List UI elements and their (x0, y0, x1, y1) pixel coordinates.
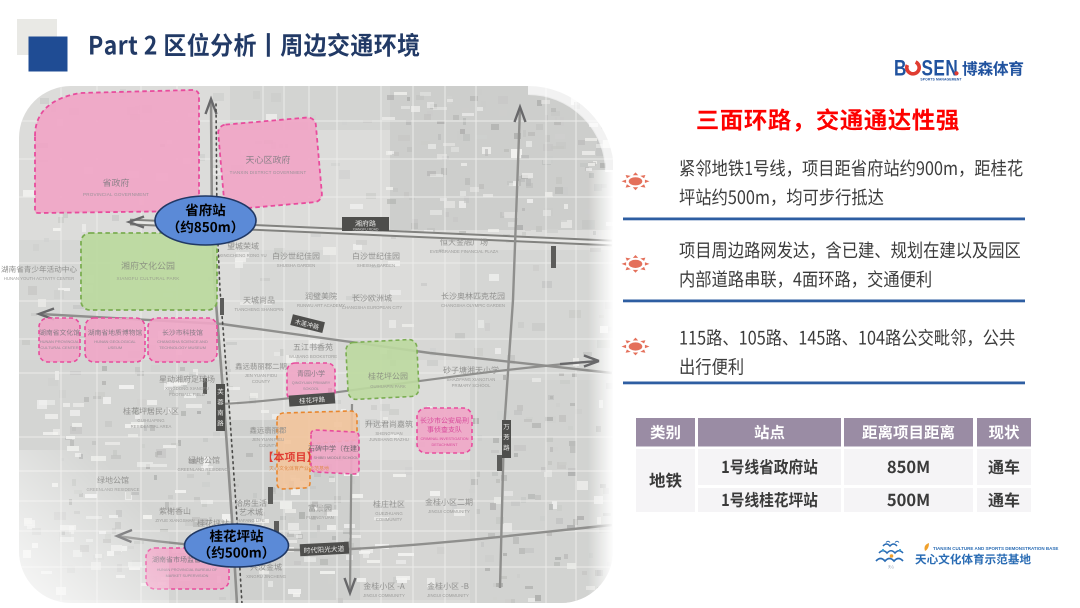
svg-text:RESIDENTIAL AREA: RESIDENTIAL AREA (131, 424, 172, 429)
svg-text:TIANXIN CULTURE AND SPORTS DEM: TIANXIN CULTURE AND SPORTS DEMONSTRATION… (933, 546, 1058, 551)
svg-text:MARKET SUPERVISION: MARKET SUPERVISION (166, 574, 209, 578)
svg-text:PRIMARY SCHOOL: PRIMARY SCHOOL (452, 383, 491, 388)
svg-text:天心: 天心 (888, 564, 895, 569)
svg-text:XINGCHENG RONG YU: XINGCHENG RONG YU (219, 253, 266, 258)
svg-text:RUNWU ART ACADEMY: RUNWU ART ACADEMY (297, 303, 345, 308)
svg-text:SPORTS MANAGEMENT: SPORTS MANAGEMENT (920, 78, 962, 82)
svg-text:GUIHUAPING: GUIHUAPING (137, 418, 165, 423)
svg-text:JINGUI COMMUNITY: JINGUI COMMUNITY (363, 593, 405, 598)
svg-text:XIANGFU CULTURAL PARK: XIANGFU CULTURAL PARK (116, 276, 180, 281)
svg-text:JINGUI COMMUNITY: JINGUI COMMUNITY (428, 509, 470, 514)
svg-text:HUNAN YOUTH ACTIVITY CENTER: HUNAN YOUTH ACTIVITY CENTER (4, 276, 75, 281)
svg-text:EVERGRANDE FINANCIAL PLAZA: EVERGRANDE FINANCIAL PLAZA (430, 249, 499, 254)
svg-text:TIANXIN DISTRICT GOVERNMENT: TIANXIN DISTRICT GOVERNMENT (230, 170, 307, 175)
svg-text:SHEISHA GARDEN: SHEISHA GARDEN (357, 263, 395, 268)
svg-text:DETACHMENT: DETACHMENT (431, 443, 458, 447)
svg-text:CRIMINAL INVESTIGATION: CRIMINAL INVESTIGATION (420, 437, 468, 441)
svg-text:GUIHUAPIN PARK: GUIHUAPIN PARK (370, 384, 406, 389)
svg-text:CHANGSHA OLYMPIC GARDEN: CHANGSHA OLYMPIC GARDEN (441, 303, 505, 308)
svg-text:SHENGYUAN: SHENGYUAN (375, 431, 402, 436)
svg-text:GUEZHUANG: GUEZHUANG (375, 511, 403, 516)
svg-text:TIANCHENG SHANGPIN: TIANCHENG SHANGPIN (235, 307, 284, 312)
svg-text:SHIBEI MIDDLE SCHOOL: SHIBEI MIDDLE SCHOOL (314, 456, 359, 460)
svg-text:CHANGSHA SCIENCE AND: CHANGSHA SCIENCE AND (157, 339, 208, 344)
svg-text:GREENLAND RESIDENCE: GREENLAND RESIDENCE (177, 467, 230, 472)
svg-text:JUNSHANG RAZHU: JUNSHANG RAZHU (369, 437, 409, 442)
svg-text:SHAZIFANG XIANGTIAN: SHAZIFANG XIANGTIAN (447, 377, 496, 382)
svg-text:FOOTBALL FIELD: FOOTBALL FIELD (169, 392, 205, 397)
svg-text:WUJIANG BOOKSTORE: WUJIANG BOOKSTORE (289, 354, 337, 359)
svg-text:JINGUI COMMUNITY: JINGUI COMMUNITY (427, 593, 469, 598)
svg-text:USEUM: USEUM (108, 345, 122, 350)
svg-text:SOKOOL: SOKOOL (303, 387, 319, 391)
svg-text:XINGDONG XIANGFU: XINGDONG XIANGFU (165, 386, 209, 391)
svg-text:FUJINGYUAN: FUJINGYUAN (306, 515, 333, 520)
svg-text:COUNTY: COUNTY (252, 379, 270, 384)
svg-text:CHANGSHA EUROPEAN CITY: CHANGSHA EUROPEAN CITY (342, 305, 403, 310)
svg-text:XINGRU JINCHENG: XINGRU JINCHENG (246, 574, 287, 579)
svg-text:SHUISHA GARDEN: SHUISHA GARDEN (277, 263, 315, 268)
svg-text:XIANGFU ROAD: XIANGFU ROAD (353, 228, 379, 232)
svg-text:HUNAN PROVINCIAL: HUNAN PROVINCIAL (40, 339, 80, 344)
svg-text:JEN YUAN FIDU: JEN YUAN FIDU (245, 373, 277, 378)
svg-text:COUNTY: COUNTY (259, 443, 277, 448)
svg-text:PROVINCIAL GOVERNMENT: PROVINCIAL GOVERNMENT (83, 192, 149, 197)
svg-text:HAFANG LIFE: HAFANG LIFE (237, 518, 265, 523)
svg-text:JEN YUAN FIEU: JEN YUAN FIEU (252, 437, 284, 442)
svg-text:COMMUNITY: COMMUNITY (376, 517, 403, 522)
svg-text:B: B (894, 57, 906, 82)
svg-text:TECHNOLOGY MUSEUM: TECHNOLOGY MUSEUM (159, 345, 206, 350)
svg-text:QINGYUAN PRIMARY: QINGYUAN PRIMARY (292, 381, 331, 385)
svg-text:HUNAN GEOLOGICAL: HUNAN GEOLOGICAL (94, 339, 136, 344)
svg-text:CULTURAL CENTER: CULTURAL CENTER (40, 345, 78, 350)
